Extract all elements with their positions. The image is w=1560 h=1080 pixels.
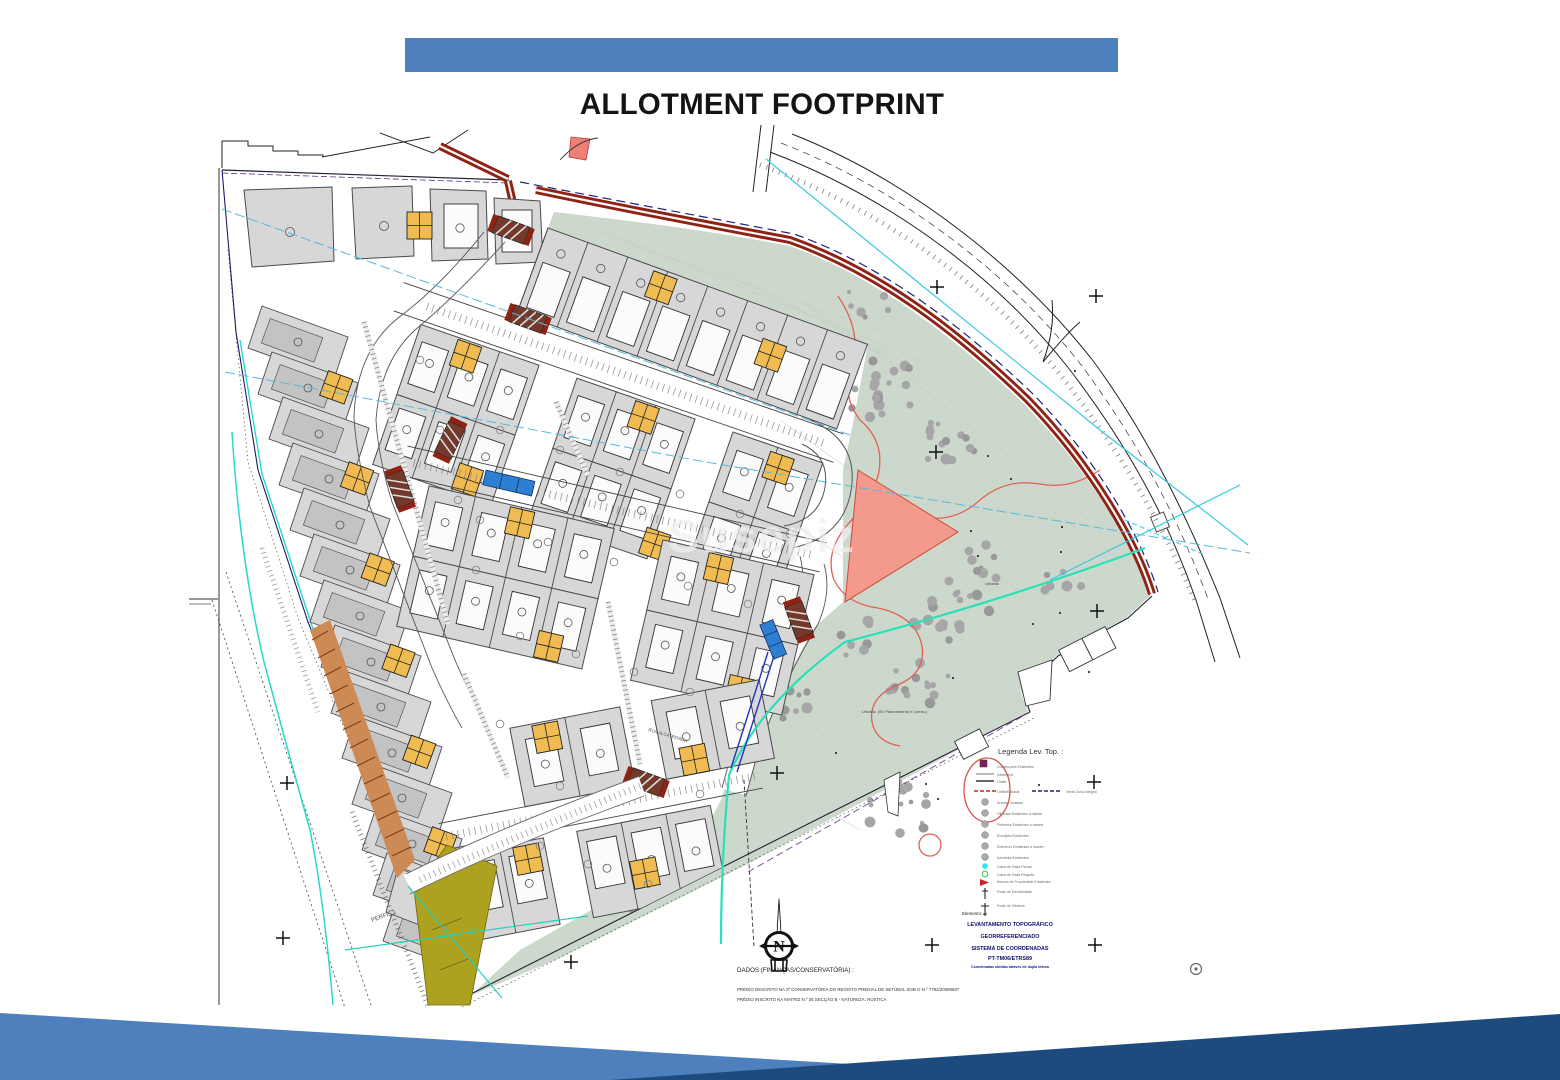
svg-text:Urbaniz. (En Planeamento e Lic: Urbaniz. (En Planeamento e Licenc.) (862, 709, 928, 714)
svg-text:LEVANTAMENTO TOPOGRÁFICO: LEVANTAMENTO TOPOGRÁFICO (967, 921, 1053, 928)
svg-text:Coordenadas obtidas através de: Coordenadas obtidas através de dupla lei… (971, 965, 1050, 969)
svg-text:Caixa de Visita Pluvial: Caixa de Visita Pluvial (997, 865, 1032, 869)
svg-text:Poste de Telefone: Poste de Telefone (997, 904, 1025, 908)
svg-text:Construções Existentes: Construções Existentes (997, 765, 1034, 769)
svg-text:Limite/Estrada: Limite/Estrada (997, 790, 1019, 794)
svg-text:Verde Zona Integral: Verde Zona Integral (1066, 790, 1097, 794)
svg-text:SISTEMA DE COORDENADAS: SISTEMA DE COORDENADAS (971, 946, 1048, 952)
svg-text:Pinheiros Existentes a manter: Pinheiros Existentes a manter (997, 823, 1044, 827)
svg-text:Azinheira Existentes: Azinheira Existentes (997, 856, 1029, 860)
svg-text:DADOS (FINANÇAS/CONSERVATÓRIA): DADOS (FINANÇAS/CONSERVATÓRIA) : (737, 967, 854, 974)
svg-text:Limite: Limite (997, 780, 1006, 784)
svg-text:Marcos de Propriedade Existent: Marcos de Propriedade Existentes (997, 880, 1051, 884)
svg-text:Poste de Electricidade: Poste de Electricidade (997, 890, 1032, 894)
svg-text:GEORREFERENCIADO: GEORREFERENCIADO (980, 934, 1039, 940)
svg-text:Elemento:: Elemento: (962, 911, 982, 916)
svg-text:Árvores Isoladas: Árvores Isoladas (997, 801, 1023, 805)
svg-text:Caixa de Visita Regadio: Caixa de Visita Regadio (997, 873, 1034, 877)
svg-text:ALLOTMENT FOOTPRINT: ALLOTMENT FOOTPRINT (580, 88, 944, 121)
svg-text:Oliveiras Existentes a manter: Oliveiras Existentes a manter (997, 812, 1043, 816)
svg-text:Eucalipto Existentes: Eucalipto Existentes (997, 834, 1029, 838)
svg-text:Sobreiros Existentes a manter: Sobreiros Existentes a manter (997, 845, 1045, 849)
svg-text:PRÉDIO INSCRITO NA MATRIZ N.º: PRÉDIO INSCRITO NA MATRIZ N.º 35 SECÇÃO … (737, 997, 887, 1002)
svg-text:PRÉDIO DESCRITO NA 2ª CONSERVA: PRÉDIO DESCRITO NA 2ª CONSERVATÓRIA DO R… (737, 987, 960, 992)
svg-text:N: N (773, 939, 785, 956)
svg-text:Urbaniz.: Urbaniz. (985, 581, 1000, 586)
svg-text:Infraestrut.: Infraestrut. (997, 773, 1014, 777)
svg-text:Susepiz: Susepiz (668, 510, 856, 562)
svg-text:PT-TM06/ETRS89: PT-TM06/ETRS89 (988, 956, 1032, 962)
svg-text:Legenda Lev. Top. :: Legenda Lev. Top. : (998, 747, 1063, 756)
